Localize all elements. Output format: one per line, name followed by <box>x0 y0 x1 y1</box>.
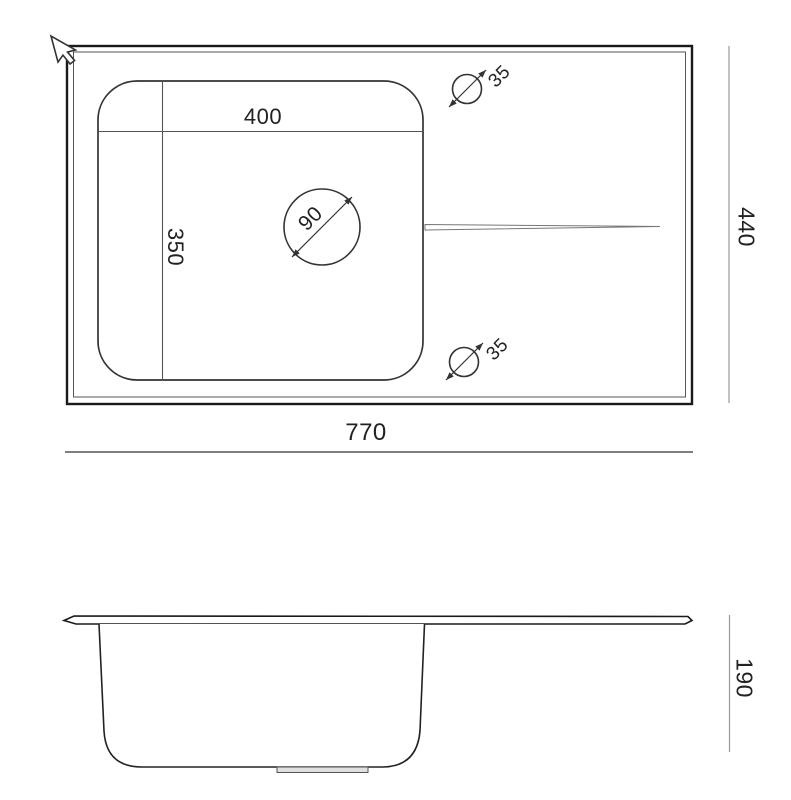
side-view-bowl-profile <box>99 624 425 767</box>
mouse-cursor-icon <box>51 31 79 67</box>
side-view-rim-slab <box>64 616 692 624</box>
bowl-width-label: 400 <box>244 104 282 130</box>
overall-width-label: 770 <box>345 419 387 447</box>
bowl-depth-label: 350 <box>162 228 188 266</box>
overall-depth-label: 440 <box>733 207 760 247</box>
side-view-drain-fitting <box>277 767 368 773</box>
sink-drawing <box>0 0 791 800</box>
bowl-height-label: 190 <box>731 658 758 698</box>
technical-drawing-canvas: 400 350 90 35 35 770 440 190 <box>0 0 791 800</box>
